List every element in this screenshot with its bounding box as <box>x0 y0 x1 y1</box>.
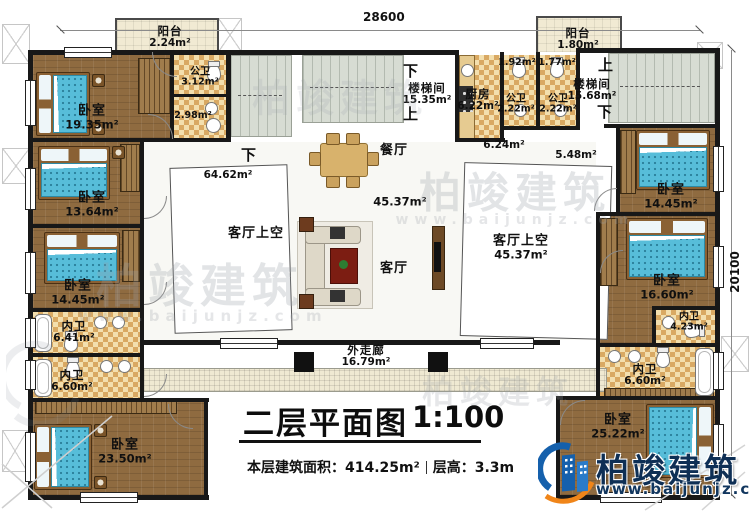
void-left-outline <box>169 164 292 334</box>
brand-logo: 柏竣建筑 www.baijunjz.com <box>538 436 750 506</box>
brand-website: www.baijunjz.com <box>596 480 750 498</box>
room-name: 卧室 <box>591 414 644 428</box>
room-area: 19.35m² <box>65 119 118 132</box>
wall <box>652 306 656 347</box>
watermark-logo-icon <box>6 336 86 426</box>
room-name: 楼梯间 <box>403 82 452 95</box>
room-name: 楼梯间 <box>568 78 617 91</box>
column <box>294 352 314 372</box>
window <box>713 246 724 288</box>
bed <box>626 218 708 280</box>
bath-298: 2.98m² <box>174 111 212 121</box>
sink <box>608 350 621 363</box>
stair-down-center: 下 <box>403 63 419 80</box>
hall-548: 5.48m² <box>555 150 596 162</box>
bath-gw-222-a: 公卫2.22m² <box>497 93 535 114</box>
room-name: 内卫 <box>53 320 94 333</box>
room-name: 客厅上空 <box>228 227 284 241</box>
hall-4537: 45.37m² <box>373 196 426 209</box>
room-name: 上 <box>598 57 614 74</box>
room-name: 阳台 <box>149 25 190 38</box>
door-swing <box>144 374 167 397</box>
room-area: 16.60m² <box>640 289 693 302</box>
dining-room: 餐厅 <box>380 144 408 158</box>
area-label: 本层建筑面积： <box>247 460 345 476</box>
wall <box>28 308 144 312</box>
subtitle-divider <box>426 461 427 474</box>
room-name: 阳台 <box>557 27 598 40</box>
stair-down-left: 下 <box>241 147 257 164</box>
bedroom-1445-left: 卧室14.45m² <box>51 280 104 307</box>
title-underline <box>239 440 481 443</box>
stair-up-center: 上 <box>403 106 419 123</box>
balcony-tl: 阳台2.24m² <box>149 25 190 49</box>
bed <box>44 232 120 284</box>
sofa-cushion <box>330 227 345 239</box>
chair <box>309 152 321 166</box>
room-name: 外走廊 <box>342 344 391 357</box>
room-name: 客厅上空 <box>493 235 549 249</box>
gw-177: 1.77m² <box>538 58 576 68</box>
room-name: 内卫 <box>624 363 665 376</box>
bath-nw-423: 内卫4.23m² <box>670 311 708 332</box>
dimension-right: 20100 <box>728 251 742 293</box>
room-area: 5.48m² <box>555 150 596 162</box>
bedroom-1660: 卧室16.60m² <box>640 275 693 302</box>
bedroom-2350: 卧室23.50m² <box>98 439 151 466</box>
room-area: 14.45m² <box>644 198 697 211</box>
bath-nw-660-right: 内卫6.60m² <box>624 363 665 387</box>
chair <box>326 176 340 188</box>
stairs-right <box>608 53 715 123</box>
sofa-cushion <box>330 290 345 302</box>
window <box>25 252 36 294</box>
side-table <box>299 217 314 232</box>
wall <box>140 138 144 402</box>
hall-6462: 64.62m² <box>204 170 253 182</box>
living-room: 客厅 <box>380 262 408 276</box>
sink <box>94 316 107 329</box>
room-area: 1.92m² <box>498 58 536 68</box>
room-name: 厨房 <box>457 88 498 101</box>
nightstand <box>92 74 105 87</box>
wall <box>596 212 720 216</box>
room-area: 6.60m² <box>624 376 665 388</box>
bed <box>636 130 710 190</box>
room-area: 23.50m² <box>98 453 151 466</box>
bedroom-1935: 卧室19.35m² <box>65 105 118 132</box>
room-name: 卧室 <box>51 280 104 294</box>
room-name: 卧室 <box>98 439 151 453</box>
wall <box>28 50 231 55</box>
wall <box>596 343 720 347</box>
balcony-tr: 阳台1.80m² <box>557 27 598 51</box>
room-area: 2.24m² <box>149 38 190 50</box>
window <box>480 338 534 349</box>
plan-scale: 1:100 <box>412 400 504 434</box>
room-area: 15.68m² <box>568 91 617 103</box>
wall <box>604 124 720 128</box>
kitchen-sink <box>461 64 474 77</box>
stairs-left <box>230 55 292 137</box>
area-value: 414.25m² <box>345 460 420 476</box>
chair <box>346 133 360 145</box>
void-right: 客厅上空45.37m² <box>493 235 549 262</box>
tv <box>434 242 441 272</box>
outer-corridor: 外走廊16.79m² <box>342 344 391 368</box>
room-name: 上 <box>403 106 419 123</box>
nightstand <box>112 146 125 159</box>
sink <box>112 316 125 329</box>
room-area: 14.45m² <box>51 294 104 307</box>
room-name: 餐厅 <box>380 144 408 158</box>
room-name: 下 <box>403 63 419 80</box>
sink <box>100 360 113 373</box>
wall <box>652 306 720 310</box>
brand-logo-icon <box>538 438 596 504</box>
column <box>428 352 448 372</box>
room-area: 6.24m² <box>483 140 524 152</box>
window <box>220 338 278 349</box>
window <box>713 146 724 192</box>
chair <box>367 152 379 166</box>
room-area: 45.37m² <box>493 249 549 262</box>
plant <box>339 260 348 269</box>
wall <box>596 212 600 400</box>
room-area: 13.64m² <box>65 206 118 219</box>
window <box>713 352 724 390</box>
plan-title: 二层平面图 <box>243 398 408 443</box>
wall <box>28 224 144 228</box>
room-area: 45.37m² <box>373 196 426 209</box>
stairs-center <box>302 55 404 123</box>
room-name: 客厅 <box>380 262 408 276</box>
room-area: 1.77m² <box>538 58 576 68</box>
bath-gw-312: 公卫3.12m² <box>181 66 219 87</box>
gw-192: 1.92m² <box>498 58 536 68</box>
room-area: 16.79m² <box>342 357 391 369</box>
stair-down-right: 下 <box>597 104 613 121</box>
window <box>64 47 112 58</box>
room-name: 下 <box>241 147 257 164</box>
bathtub <box>695 348 714 396</box>
eave-box <box>2 24 30 64</box>
window <box>25 168 36 210</box>
bedroom-1445-right: 卧室14.45m² <box>644 184 697 211</box>
eave-box <box>218 18 242 52</box>
floor-outer-corridor <box>143 368 607 392</box>
chair <box>326 133 340 145</box>
wardrobe <box>122 230 140 282</box>
wall <box>500 126 580 130</box>
room-area: 3.12m² <box>181 77 219 87</box>
wall <box>172 94 228 97</box>
side-table <box>299 294 314 309</box>
room-area: 6.22m² <box>457 101 498 113</box>
room-area: 2.98m² <box>174 111 212 121</box>
stairwell-center: 楼梯间15.35m² <box>403 82 452 106</box>
floor-height-value: 3.3m <box>475 460 514 476</box>
wall <box>28 138 231 142</box>
room-area: 4.23m² <box>670 322 708 332</box>
room-area: 1.80m² <box>557 40 598 52</box>
wall <box>204 398 208 500</box>
bedroom-1364: 卧室13.64m² <box>65 192 118 219</box>
floor-plan: 28600 20100 <box>0 0 750 512</box>
dimension-top: 28600 <box>363 10 405 24</box>
room-name: 卧室 <box>640 275 693 289</box>
chair <box>346 176 360 188</box>
floor-height-label: 层高： <box>433 460 475 476</box>
stairwell-right: 楼梯间15.68m² <box>568 78 617 102</box>
room-area: 2.22m² <box>539 104 577 114</box>
stair-arrow <box>620 86 700 87</box>
sink <box>118 360 131 373</box>
kitchen: 厨房6.22m² <box>457 88 498 112</box>
stair-arrow <box>310 87 394 88</box>
room-area: 2.22m² <box>497 104 535 114</box>
plan-subtitle: 本层建筑面积：414.25m²层高：3.3m <box>247 457 514 477</box>
room-name: 卧室 <box>65 105 118 119</box>
stair-up-right: 上 <box>598 57 614 74</box>
wardrobe <box>620 130 636 194</box>
void-left: 客厅上空 <box>228 227 284 241</box>
eave-box <box>721 336 749 372</box>
wall <box>226 50 459 55</box>
room-name: 卧室 <box>644 184 697 198</box>
room-name: 卧室 <box>65 192 118 206</box>
dining-table <box>320 143 368 177</box>
stair-arrow <box>238 95 282 96</box>
hall-624: 6.24m² <box>483 140 524 152</box>
window <box>25 80 36 126</box>
room-name: 下 <box>597 104 613 121</box>
room-area: 64.62m² <box>204 170 253 182</box>
